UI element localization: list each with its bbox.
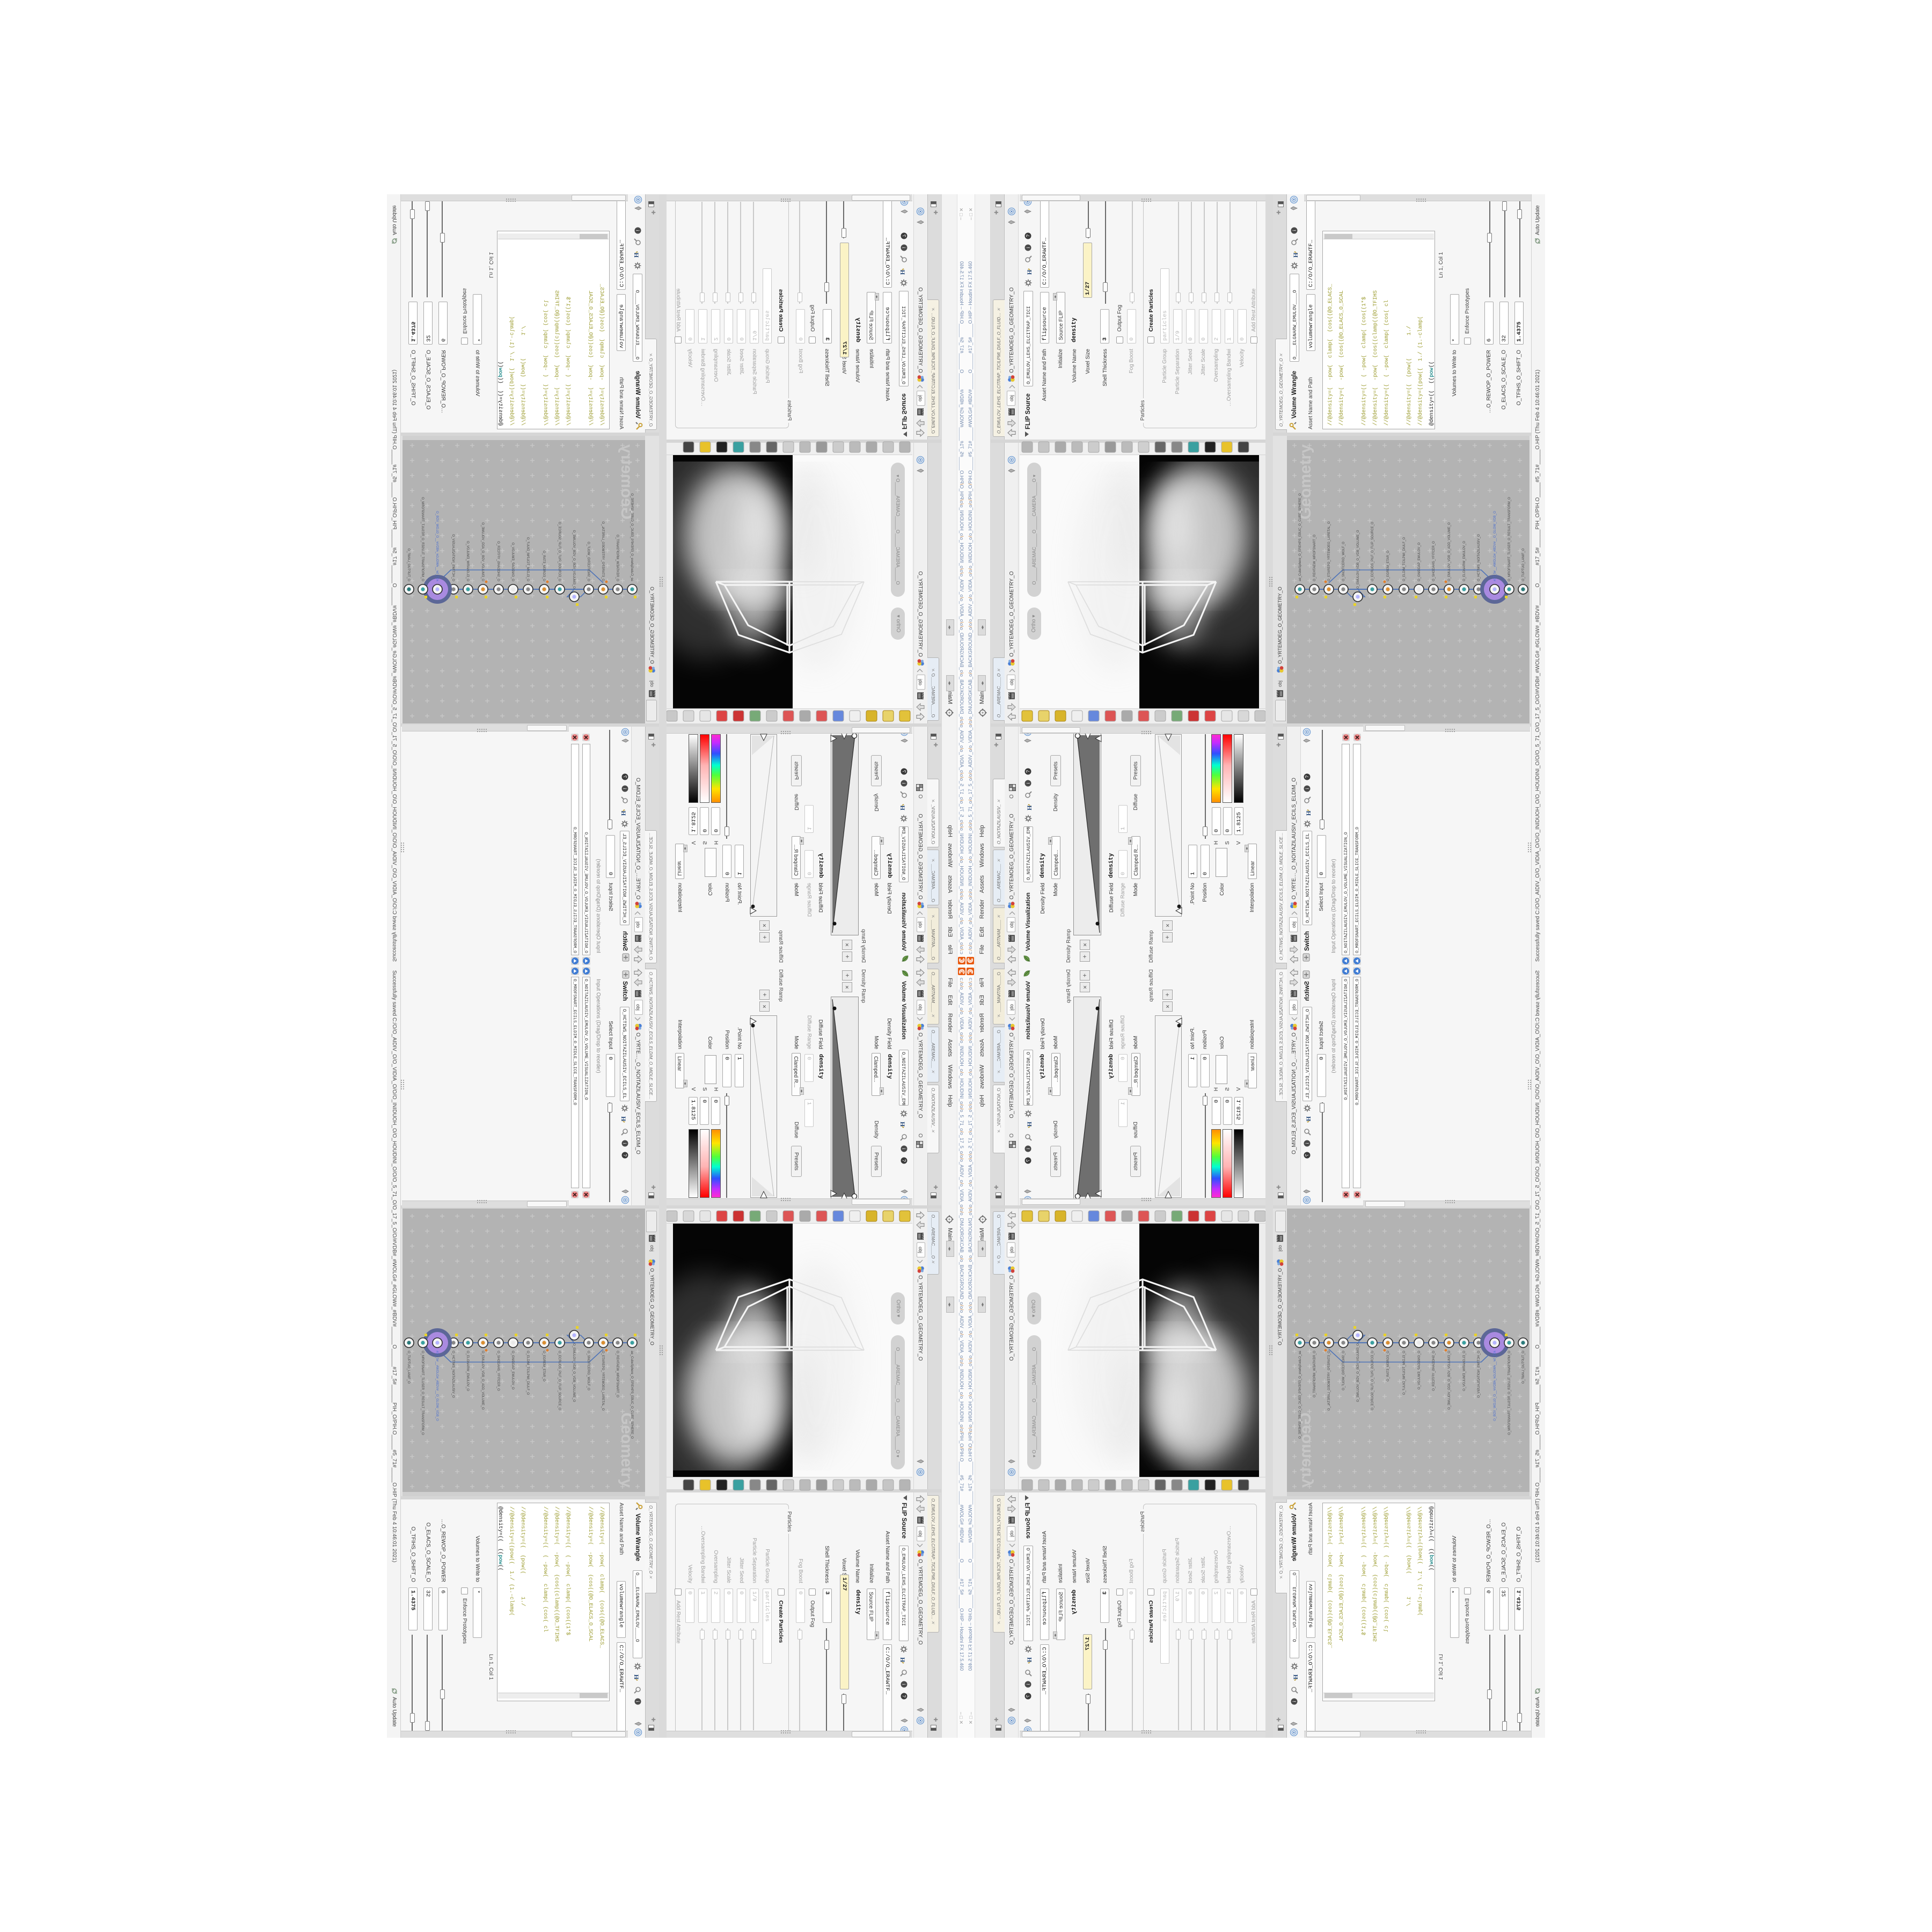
svg-text:?: ? bbox=[902, 770, 907, 773]
svg-text:#17_5#__#WOLG#_#BDV#__O_GLOW_V: #17_5#__#WOLG#_#BDV#__O_GLOW_VDB_O bbox=[435, 1351, 438, 1421]
svg-text:O_ELGNARW_EMULOV_O: O_ELGNARW_EMULOV_O bbox=[1463, 1351, 1466, 1391]
svg-text:?: ? bbox=[1026, 770, 1031, 773]
svg-text:O_SHODAHS_YFITCER_O: O_SHODAHS_YFITCER_O bbox=[496, 541, 500, 581]
svg-text:O_ECRUOS_PILF_O_FLIP_SOURCE_O: O_ECRUOS_PILF_O_FLIP_SOURCE_O bbox=[558, 1351, 561, 1410]
svg-text:O_ECRUOS_PILF_O_FLIP_SOURCE_O: O_ECRUOS_PILF_O_FLIP_SOURCE_O bbox=[1371, 1351, 1374, 1410]
svg-text:O_EMULOV_VDB_O_VDB_VOLUME_O: O_EMULOV_VDB_O_VDB_VOLUME_O bbox=[1357, 1343, 1360, 1402]
svg-text:O_SNOITCERID_WOLF_O: O_SNOITCERID_WOLF_O bbox=[587, 1351, 590, 1391]
svg-text:O_ELDIM_TCILPMI_DIULF_O: O_ELDIM_TCILPMI_DIULF_O bbox=[1403, 537, 1406, 581]
svg-text:O_REHTAEW_MROFSNART_O: O_REHTAEW_MROFSNART_O bbox=[616, 535, 619, 581]
svg-text:#17_5#__#WOLG#_#BDV#__O_GLOW_V: #17_5#__#WOLG#_#BDV#__O_GLOW_VDB_O bbox=[435, 511, 438, 581]
svg-text:O_TUPTUO_LANIF_O: O_TUPTUO_LANIF_O bbox=[1522, 548, 1525, 581]
svg-text:i: i bbox=[1026, 782, 1031, 784]
svg-text:?: ? bbox=[623, 1154, 628, 1157]
svg-text:i: i bbox=[1026, 247, 1031, 248]
svg-text:O_ECRUOS_PILF_O_FLIP_SOURCE_O: O_ECRUOS_PILF_O_FLIP_SOURCE_O bbox=[558, 522, 561, 581]
svg-text:O_ELDIM_TCILPMI_DIULF_O: O_ELDIM_TCILPMI_DIULF_O bbox=[526, 1351, 529, 1395]
svg-text:?: ? bbox=[1305, 1154, 1310, 1157]
svg-text:O_TUPTUO_LANIF_O: O_TUPTUO_LANIF_O bbox=[407, 1351, 410, 1384]
svg-text:O_EMULOV_VDB_O_VDB_VOLUME_O: O_EMULOV_VDB_O_VDB_VOLUME_O bbox=[572, 530, 575, 589]
svg-text:O_HCTIWS_NOITAZILAUSIV_O: O_HCTIWS_NOITAZILAUSIV_O bbox=[451, 534, 455, 581]
svg-text:?: ? bbox=[1026, 1695, 1031, 1697]
svg-text:O_EMULOV_VDB_O_ADD_VOLUME_O: O_EMULOV_VDB_O_ADD_VOLUME_O bbox=[1448, 1351, 1451, 1410]
svg-text:O_EMULOV_VDB_O_ADD_VOLUME_O: O_EMULOV_VDB_O_ADD_VOLUME_O bbox=[481, 522, 484, 581]
svg-text:O_SHODAHS_YFITCER_O: O_SHODAHS_YFITCER_O bbox=[1432, 541, 1436, 581]
svg-text:ae_CubeSphere_O_EREHPS_EBUC_O_: ae_CubeSphere_O_EREHPS_EBUC_O_CUBE_SPHER… bbox=[630, 493, 633, 581]
svg-text:?: ? bbox=[623, 775, 628, 778]
svg-text:?: ? bbox=[1305, 775, 1310, 778]
svg-text:O_HCTIWS_NOITAZILAUSIV_O: O_HCTIWS_NOITAZILAUSIV_O bbox=[1477, 1351, 1481, 1398]
svg-text:O_MROFSNART_TLUSER_O_RESULT_TR: O_MROFSNART_TLUSER_O_RESULT_TRANSFORM_O bbox=[421, 1351, 424, 1435]
svg-text:?: ? bbox=[902, 1695, 907, 1697]
svg-text:O_SNOITCERID_WOLF_O: O_SNOITCERID_WOLF_O bbox=[1342, 541, 1345, 581]
svg-text:O_REHTAEW_MROFSNART_O: O_REHTAEW_MROFSNART_O bbox=[1313, 535, 1316, 581]
svg-text:O_ELGNARW_EMULOV_O: O_ELGNARW_EMULOV_O bbox=[466, 1351, 469, 1391]
svg-text:?: ? bbox=[902, 1159, 907, 1162]
svg-text:O_SNOITCERID_WOLF_O: O_SNOITCERID_WOLF_O bbox=[1342, 1351, 1345, 1391]
svg-text:i: i bbox=[902, 247, 907, 248]
svg-text:O_TUPTUO_LANIF_O: O_TUPTUO_LANIF_O bbox=[407, 548, 410, 581]
svg-text:i: i bbox=[635, 230, 641, 231]
svg-text:i: i bbox=[1292, 230, 1297, 231]
svg-text:O_ELGNARW_EMULOV_O: O_ELGNARW_EMULOV_O bbox=[1463, 541, 1466, 581]
svg-text:O_ELGNARW_EMULOV_O: O_ELGNARW_EMULOV_O bbox=[466, 541, 469, 581]
svg-text:ae_CubeSphere_O_EREHPS_EBUC_O_: ae_CubeSphere_O_EREHPS_EBUC_O_CUBE_SPHER… bbox=[630, 1351, 633, 1439]
svg-text:?: ? bbox=[1026, 235, 1031, 237]
svg-text:O_EMULOV_VDB_O_ADD_VOLUME_O: O_EMULOV_VDB_O_ADD_VOLUME_O bbox=[1448, 522, 1451, 581]
svg-text:O_ETAREPO_YRTEMOEG_LARETAL_O: O_ETAREPO_YRTEMOEG_LARETAL_O bbox=[601, 1351, 604, 1411]
svg-text:ae_CubeSphere_O_EREHPS_EBUC_O_: ae_CubeSphere_O_EREHPS_EBUC_O_CUBE_SPHER… bbox=[1299, 1351, 1302, 1439]
svg-text:#17_5#__#WOLG#_#BDV#__O_GLOW_V: #17_5#__#WOLG#_#BDV#__O_GLOW_VDB_O bbox=[1494, 511, 1497, 581]
svg-text:O_MROFSNART_TLUSER_O_RESULT_TR: O_MROFSNART_TLUSER_O_RESULT_TRANSFORM_O bbox=[1508, 497, 1511, 581]
svg-text:?: ? bbox=[1026, 1159, 1031, 1162]
svg-text:O_ETAREPO_YRTEMOEG_LARETAL_O: O_ETAREPO_YRTEMOEG_LARETAL_O bbox=[1328, 1351, 1331, 1411]
svg-text:O_EGREM_ETAR_O: O_EGREM_ETAR_O bbox=[542, 1351, 545, 1381]
svg-text:#17_5#__#WOLG#_#BDV#__O_GLOW_V: #17_5#__#WOLG#_#BDV#__O_GLOW_VDB_O bbox=[1494, 1351, 1497, 1421]
svg-text:O_EGREM_ETAR_O: O_EGREM_ETAR_O bbox=[1387, 1351, 1390, 1381]
svg-text:O_EMULOV_VDB_O_VDB_VOLUME_O: O_EMULOV_VDB_O_VDB_VOLUME_O bbox=[1357, 530, 1360, 589]
svg-text:O_MROFSNART_TLUSER_O_RESULT_TR: O_MROFSNART_TLUSER_O_RESULT_TRANSFORM_O bbox=[1508, 1351, 1511, 1435]
svg-text:ae_CubeSphere_O_EREHPS_EBUC_O_: ae_CubeSphere_O_EREHPS_EBUC_O_CUBE_SPHER… bbox=[1299, 493, 1302, 581]
svg-text:O_REHTAEW_MROFSNART_O: O_REHTAEW_MROFSNART_O bbox=[1313, 1351, 1316, 1397]
svg-text:O_HCTIWS_NOITAZILAUSIV_O: O_HCTIWS_NOITAZILAUSIV_O bbox=[451, 1351, 455, 1398]
svg-text:O_REHTAEW_MROFSNART_O: O_REHTAEW_MROFSNART_O bbox=[616, 1351, 619, 1397]
svg-text:O_SNOITCERID_WOLF_O: O_SNOITCERID_WOLF_O bbox=[587, 541, 590, 581]
svg-text:O_ETAREPO_YRTEMOEG_LARETAL_O: O_ETAREPO_YRTEMOEG_LARETAL_O bbox=[601, 521, 604, 581]
svg-text:O_EGREM_ETAR_O: O_EGREM_ETAR_O bbox=[542, 551, 545, 581]
svg-text:O_GNIDDAP_EMULOV_O: O_GNIDDAP_EMULOV_O bbox=[511, 1351, 514, 1389]
svg-text:O_ETAREPO_YRTEMOEG_LARETAL_O: O_ETAREPO_YRTEMOEG_LARETAL_O bbox=[1328, 521, 1331, 581]
svg-text:?: ? bbox=[902, 235, 907, 237]
svg-text:O_SHODAHS_YFITCER_O: O_SHODAHS_YFITCER_O bbox=[1432, 1351, 1436, 1391]
svg-text:O_TUPTUO_LANIF_O: O_TUPTUO_LANIF_O bbox=[1522, 1351, 1525, 1384]
svg-text:O_GNIDDAP_EMULOV_O: O_GNIDDAP_EMULOV_O bbox=[1418, 1351, 1421, 1389]
svg-text:O_GNIDDAP_EMULOV_O: O_GNIDDAP_EMULOV_O bbox=[511, 543, 514, 581]
svg-text:O_EGREM_ETAR_O: O_EGREM_ETAR_O bbox=[1387, 551, 1390, 581]
svg-text:O_EMULOV_VDB_O_VDB_VOLUME_O: O_EMULOV_VDB_O_VDB_VOLUME_O bbox=[572, 1343, 575, 1402]
svg-text:O_MROFSNART_TLUSER_O_RESULT_TR: O_MROFSNART_TLUSER_O_RESULT_TRANSFORM_O bbox=[421, 497, 424, 581]
svg-text:O_ELDIM_TCILPMI_DIULF_O: O_ELDIM_TCILPMI_DIULF_O bbox=[526, 537, 529, 581]
svg-text:O_EMULOV_VDB_O_ADD_VOLUME_O: O_EMULOV_VDB_O_ADD_VOLUME_O bbox=[481, 1351, 484, 1410]
svg-text:i: i bbox=[1305, 788, 1310, 789]
svg-text:O_HCTIWS_NOITAZILAUSIV_O: O_HCTIWS_NOITAZILAUSIV_O bbox=[1477, 534, 1481, 581]
svg-text:i: i bbox=[902, 782, 907, 784]
svg-text:O_ELDIM_TCILPMI_DIULF_O: O_ELDIM_TCILPMI_DIULF_O bbox=[1403, 1351, 1406, 1395]
svg-text:O_SHODAHS_YFITCER_O: O_SHODAHS_YFITCER_O bbox=[496, 1351, 500, 1391]
svg-text:i: i bbox=[623, 788, 628, 789]
svg-text:O_GNIDDAP_EMULOV_O: O_GNIDDAP_EMULOV_O bbox=[1418, 543, 1421, 581]
svg-text:O_ECRUOS_PILF_O_FLIP_SOURCE_O: O_ECRUOS_PILF_O_FLIP_SOURCE_O bbox=[1371, 522, 1374, 581]
